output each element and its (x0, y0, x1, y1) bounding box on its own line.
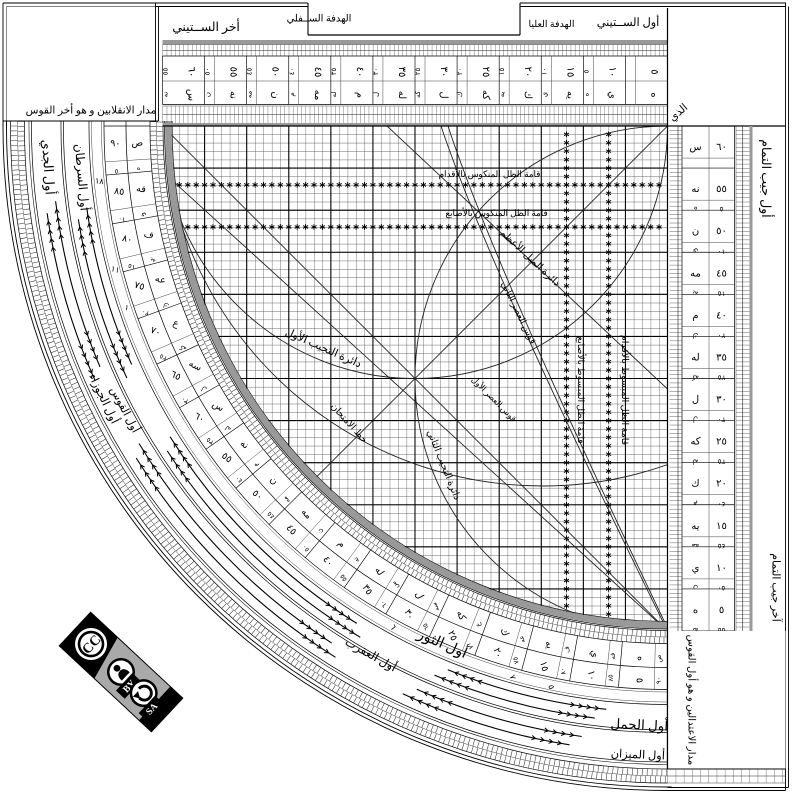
svg-text:مه: مه (690, 268, 701, 279)
svg-text:مه: مه (692, 542, 700, 550)
svg-text:٤٥: ٤٥ (312, 67, 323, 78)
svg-text:يه: يه (693, 289, 699, 297)
svg-text:أول جيب التمام: أول جيب التمام (758, 139, 775, 217)
svg-text:٣٥: ٣٥ (716, 352, 727, 363)
svg-text:م: م (692, 310, 698, 321)
svg-text:قامة الظل المنكوس بالأصابع: قامة الظل المنكوس بالأصابع (445, 207, 547, 219)
svg-text:١٥: ١٥ (716, 521, 727, 532)
svg-text:٢٠: ٢٠ (716, 479, 727, 490)
svg-text:٥: ٥ (648, 69, 659, 74)
svg-text:٤٠: ٤٠ (288, 68, 296, 76)
svg-text:يه: يه (691, 521, 699, 532)
svg-text:ن: ن (270, 91, 281, 98)
svg-text:ل: ل (438, 91, 449, 98)
svg-text:له: له (691, 352, 699, 363)
svg-text:٥٠: ٥٠ (718, 584, 726, 592)
svg-text:فه: فه (136, 183, 147, 195)
svg-text:ك: ك (691, 479, 699, 490)
svg-text:٢٠: ٢٠ (522, 67, 533, 78)
svg-text:١٠: ١٠ (540, 68, 548, 76)
svg-text:ص: ص (656, 654, 663, 662)
svg-text:٨٠: ٨٠ (559, 667, 567, 675)
svg-text:١٨: ١٨ (95, 176, 105, 186)
svg-text:له: له (396, 91, 407, 99)
svg-text:٥٠: ٥٠ (716, 226, 727, 237)
svg-text:١٠: ١٠ (718, 247, 726, 255)
svg-text:كه: كه (691, 374, 699, 382)
svg-text:٥: ٥ (719, 605, 724, 616)
svg-text:قامة الظل المنكوس بالأقدام: قامة الظل المنكوس بالأقدام (439, 168, 541, 180)
svg-text:آخر جيب التمام: آخر جيب التمام (770, 553, 783, 623)
svg-text:مدار الانقلابين و هو أخر القوس: مدار الانقلابين و هو أخر القوس (26, 103, 157, 117)
svg-text:الهدفة الســفلي: الهدفة الســفلي (287, 14, 352, 25)
svg-text:فه: فه (610, 652, 618, 659)
svg-text:٤٥: ٤٥ (716, 268, 727, 279)
svg-text:٥٠: ٥٠ (204, 68, 212, 76)
svg-text:ه: ه (582, 92, 590, 96)
svg-text:ك: ك (456, 91, 464, 97)
svg-text:٩٠: ٩٠ (656, 677, 663, 684)
svg-text:٣٠: ٣٠ (716, 395, 727, 406)
svg-text:ي: ي (692, 563, 700, 574)
svg-text:١٥: ١٥ (718, 289, 726, 297)
svg-text:٥٠: ٥٠ (270, 67, 281, 78)
svg-text:٨٠: ٨٠ (121, 233, 133, 246)
svg-text:٢٠: ٢٠ (456, 68, 464, 76)
svg-text:١٠: ١٠ (606, 67, 617, 78)
svg-text:١٠: ١٠ (585, 670, 597, 682)
svg-text:٥: ٥ (634, 678, 645, 684)
svg-text:ي: ي (606, 91, 617, 99)
svg-text:٣٥: ٣٥ (330, 68, 338, 76)
svg-text:نه: نه (162, 92, 170, 98)
svg-text:مه: مه (312, 90, 323, 101)
svg-text:قامة الظل المبسوط بالأصابع: قامة الظل المبسوط بالأصابع (575, 336, 587, 443)
svg-text:٨٥: ٨٥ (607, 674, 615, 682)
svg-text:٦٠: ٦٠ (716, 142, 727, 153)
svg-text:مدار الاعتدالين و هو أول القوس: مدار الاعتدالين و هو أول القوس (686, 635, 699, 766)
svg-text:ص: ص (131, 137, 143, 148)
svg-text:٦٠: ٦٠ (186, 67, 197, 78)
svg-text:٢٠: ٢٠ (718, 331, 726, 339)
svg-text:٣٠: ٣٠ (718, 416, 726, 424)
svg-text:٤٥: ٤٥ (246, 68, 254, 76)
svg-text:ه: ه (635, 656, 646, 662)
svg-text:٢٥: ٢٥ (414, 68, 422, 76)
svg-text:٤٠: ٤٠ (716, 310, 727, 321)
svg-text:ي: ي (692, 247, 698, 255)
svg-text:نه: نه (228, 91, 239, 99)
svg-text:٢٥: ٢٥ (718, 374, 726, 382)
svg-text:ن: ن (204, 92, 212, 97)
svg-text:ن: ن (693, 584, 698, 592)
svg-text:٤٠: ٤٠ (354, 67, 365, 78)
svg-text:٤٠: ٤٠ (718, 500, 726, 508)
svg-text:كه: كه (690, 437, 700, 448)
svg-text:١٥: ١٥ (564, 67, 575, 78)
svg-text:٥: ٥ (582, 69, 590, 73)
svg-text:٤٥: ٤٥ (718, 542, 726, 550)
svg-text:ك: ك (522, 91, 533, 99)
svg-text:ه: ه (648, 92, 659, 97)
svg-text:قامة الظل المبسوط بالأقدام: قامة الظل المبسوط بالأقدام (619, 335, 631, 446)
svg-text:٣٠: ٣٠ (372, 68, 380, 76)
svg-text:ل: ل (372, 92, 380, 97)
svg-text:أخر الســتيني: أخر الســتيني (172, 19, 240, 34)
svg-text:م: م (693, 500, 697, 508)
svg-text:م: م (288, 92, 296, 96)
svg-text:ك: ك (692, 331, 698, 339)
svg-text:٩٠: ٩٠ (110, 138, 121, 149)
svg-text:كه: كه (414, 90, 422, 98)
svg-text:الهدفة العليا: الهدفة العليا (529, 19, 575, 30)
svg-text:كه: كه (480, 90, 491, 100)
svg-text:٢٥: ٢٥ (480, 67, 491, 78)
svg-text:٥٥: ٥٥ (716, 184, 727, 195)
svg-text:٢٥: ٢٥ (716, 437, 727, 448)
svg-text:ل: ل (693, 416, 698, 424)
svg-text:ه: ه (693, 205, 697, 213)
svg-text:ن: ن (692, 226, 699, 237)
svg-text:م: م (354, 92, 365, 98)
svg-text:١٠: ١٠ (716, 563, 727, 574)
svg-text:٣٥: ٣٥ (396, 67, 407, 78)
svg-text:٣٠: ٣٠ (438, 67, 449, 78)
svg-text:ل: ل (692, 395, 699, 406)
svg-text:نه: نه (691, 184, 699, 195)
svg-text:س: س (186, 89, 197, 101)
svg-text:١٥: ١٥ (498, 68, 506, 76)
svg-text:ه: ه (693, 605, 698, 616)
svg-text:مه: مه (246, 91, 254, 99)
svg-text:٣٥: ٣٥ (718, 458, 726, 466)
svg-text:٥٥: ٥٥ (162, 68, 170, 76)
svg-text:أول الســتيني: أول الســتيني (597, 15, 660, 29)
svg-text:١٠: ١٠ (118, 215, 126, 223)
svg-text:له: له (330, 92, 338, 98)
svg-text:٨٥: ٨٥ (113, 186, 125, 198)
svg-text:س: س (689, 142, 701, 153)
svg-text:له: له (693, 458, 699, 466)
svg-text:يه: يه (498, 92, 506, 98)
svg-text:ي: ي (540, 91, 548, 97)
svg-text:يه: يه (564, 91, 575, 99)
svg-text:٥٥: ٥٥ (228, 67, 239, 78)
svg-text:٥: ٥ (719, 205, 723, 213)
